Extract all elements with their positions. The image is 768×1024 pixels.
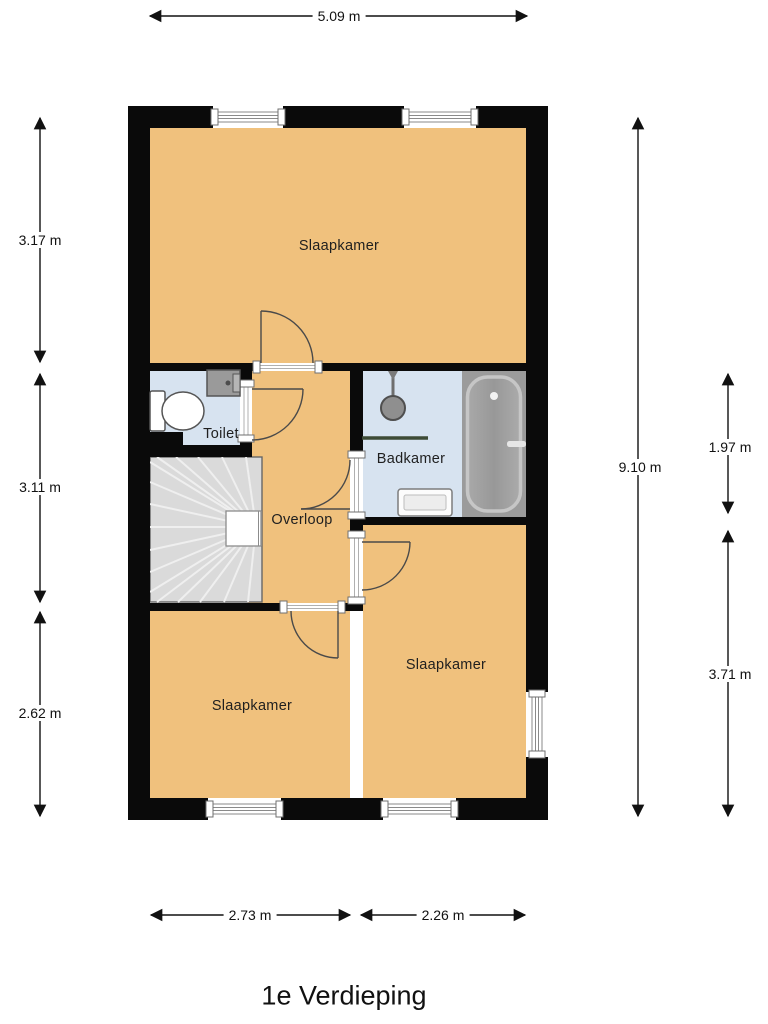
window-top-2 (402, 106, 478, 128)
dim-right-badkamer: 1.97 m (704, 439, 757, 455)
window-bottom-1 (206, 798, 283, 820)
dim-bottom-left: 2.73 m (224, 907, 277, 923)
label-toilet: Toilet (203, 426, 239, 442)
bathroom-sink (398, 489, 452, 516)
page-title: 1e Verdieping (261, 981, 426, 1012)
bathtub (462, 371, 526, 517)
floor-plan-drawing (0, 0, 768, 1024)
stair-landing (226, 511, 261, 546)
label-overloop: Overloop (271, 512, 332, 528)
tub-drain (490, 392, 498, 400)
label-slaapkamer-right: Slaapkamer (406, 657, 486, 673)
toilet-fixture (150, 391, 204, 431)
dim-left-bottom: 2.62 m (14, 705, 67, 721)
tub-handle (507, 441, 526, 447)
dim-top: 5.09 m (313, 8, 366, 24)
dim-left-top: 3.17 m (14, 232, 67, 248)
dim-left-middle: 3.11 m (14, 479, 66, 495)
staircase (150, 457, 262, 602)
room-overloop (248, 370, 350, 611)
toilet-sink (207, 370, 240, 396)
label-slaapkamer-left: Slaapkamer (212, 698, 292, 714)
window-bottom-2 (381, 798, 458, 820)
label-slaapkamer-top: Slaapkamer (299, 238, 379, 254)
dim-right-slaapkamer: 3.71 m (704, 666, 757, 682)
label-badkamer: Badkamer (377, 451, 446, 467)
window-right (526, 690, 548, 758)
dim-bottom-right: 2.26 m (417, 907, 470, 923)
floor-plan: Slaapkamer Toilet Overloop Badkamer Slaa… (0, 0, 768, 1024)
window-top-1 (211, 106, 285, 128)
dim-right-total: 9.10 m (614, 459, 667, 475)
